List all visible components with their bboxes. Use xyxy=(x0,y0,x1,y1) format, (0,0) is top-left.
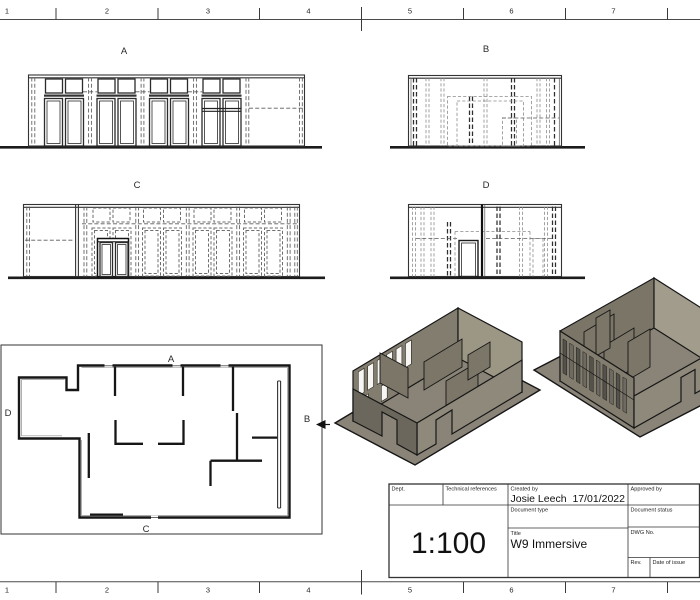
elevation-d-view[interactable]: D xyxy=(390,180,585,278)
top-ruler: 1 2 3 4 5 6 7 xyxy=(0,7,700,32)
elevation-c-label: C xyxy=(134,180,141,191)
ruler-number: 1 xyxy=(5,586,9,595)
created-by-name: Josie Leech xyxy=(511,493,567,505)
elevation-c-view[interactable]: C xyxy=(8,180,325,278)
drawing-sheet-canvas: 1 2 3 4 5 6 7 A B C xyxy=(0,0,700,600)
elevation-b-view[interactable]: B xyxy=(390,44,585,147)
ruler-number: 4 xyxy=(306,586,310,595)
plan-partitions xyxy=(89,367,277,515)
ruler-number: 7 xyxy=(611,7,615,16)
date-of-issue-label: Date of issue xyxy=(653,560,686,566)
created-by-label: Created by xyxy=(511,487,539,493)
plan-wall-openings xyxy=(105,364,229,520)
floor-plan-label-top: A xyxy=(168,354,175,365)
ruler-number: 1 xyxy=(5,7,9,16)
floor-plan-label-left: D xyxy=(5,408,12,419)
plan-outer-walls xyxy=(19,366,290,518)
elevation-a-label: A xyxy=(121,46,128,57)
ruler-number: 5 xyxy=(408,7,412,16)
ruler-number: 2 xyxy=(105,586,109,595)
double-door-elevation-c xyxy=(98,239,129,277)
ruler-number: 6 xyxy=(509,7,513,16)
document-type-label: Document type xyxy=(511,508,549,514)
scale-value: 1:100 xyxy=(411,527,486,560)
ruler-number: 4 xyxy=(306,7,310,16)
single-door-elevation-d xyxy=(459,241,478,277)
elevation-b-label: B xyxy=(483,44,489,55)
rev-label: Rev. xyxy=(631,560,643,566)
elevation-a-view[interactable]: A xyxy=(0,46,322,147)
ruler-number: 5 xyxy=(408,586,412,595)
approved-by-label: Approved by xyxy=(631,487,663,493)
plan-corridor-wall xyxy=(278,381,281,508)
ruler-number: 3 xyxy=(206,586,210,595)
section-arrow xyxy=(316,420,330,429)
ruler-number: 7 xyxy=(611,586,615,595)
iso-view-left[interactable] xyxy=(335,308,540,465)
title-block: Dept. Technical references Created by Jo… xyxy=(389,484,700,578)
title-value: W9 Immersive xyxy=(511,537,588,551)
floor-plan-view[interactable]: A B C D xyxy=(1,345,330,535)
floor-plan-label-bottom: C xyxy=(143,524,150,535)
iso-view-right[interactable] xyxy=(534,278,700,437)
ruler-number: 6 xyxy=(509,586,513,595)
ruler-number: 2 xyxy=(105,7,109,16)
dept-label: Dept. xyxy=(392,487,406,493)
floor-plan-label-right: B xyxy=(304,414,310,425)
document-status-label: Document status xyxy=(631,508,673,514)
ruler-number: 3 xyxy=(206,7,210,16)
technical-references-label: Technical references xyxy=(446,487,498,493)
created-by-date: 17/01/2022 xyxy=(572,493,625,505)
elevation-d-label: D xyxy=(483,180,490,191)
dwg-no-label: DWG No. xyxy=(631,530,655,536)
